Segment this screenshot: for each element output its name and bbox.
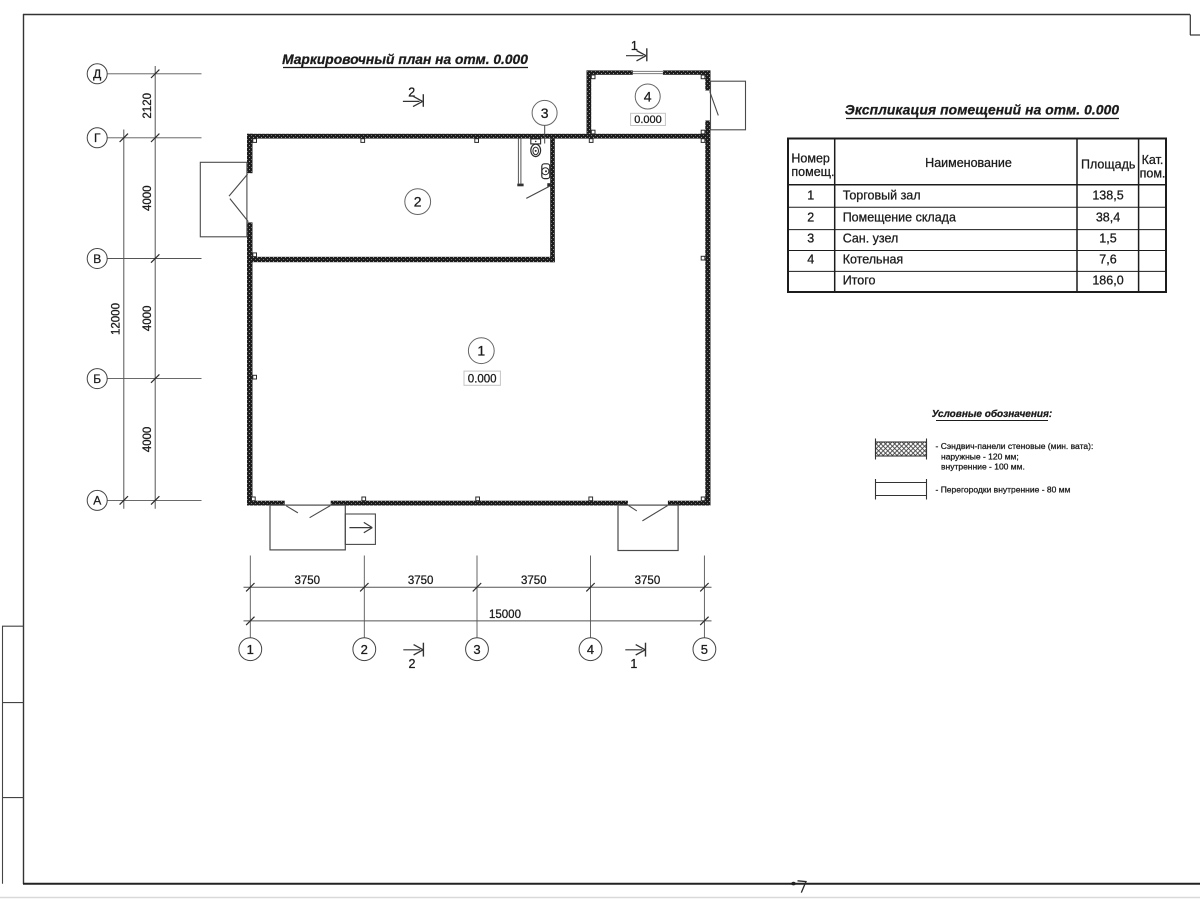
- svg-text:4: 4: [644, 88, 652, 104]
- svg-text:3: 3: [807, 232, 814, 246]
- svg-text:2: 2: [414, 194, 422, 210]
- svg-text:3: 3: [541, 105, 549, 121]
- svg-text:5: 5: [701, 642, 708, 657]
- svg-text:1: 1: [630, 657, 637, 671]
- svg-text:Номер: Номер: [791, 151, 830, 165]
- svg-text:Котельная: Котельная: [843, 252, 904, 266]
- svg-text:1: 1: [247, 642, 254, 657]
- svg-text:4000: 4000: [142, 427, 154, 453]
- svg-text:наружные - 120 мм;: наружные - 120 мм;: [941, 452, 1019, 462]
- svg-text:2: 2: [361, 642, 368, 657]
- svg-text:Маркировочный план на отм. 0.0: Маркировочный план на отм. 0.000: [282, 52, 528, 67]
- svg-text:3750: 3750: [408, 575, 434, 587]
- svg-text:Г: Г: [94, 131, 101, 145]
- svg-text:Наименование: Наименование: [925, 156, 1012, 170]
- svg-text:7,6: 7,6: [1099, 252, 1116, 266]
- svg-text:Итого: Итого: [843, 274, 876, 288]
- svg-text:0.000: 0.000: [634, 114, 662, 126]
- svg-text:3750: 3750: [635, 575, 661, 587]
- svg-text:- Сэндвич-панели стеновые (мин: - Сэндвич-панели стеновые (мин. вата):: [936, 441, 1094, 451]
- svg-text:4000: 4000: [142, 306, 154, 332]
- svg-text:Площадь: Площадь: [1081, 158, 1135, 172]
- svg-text:Условные обозначения:: Условные обозначения:: [932, 408, 1052, 420]
- svg-text:Сан. узел: Сан. узел: [843, 232, 899, 246]
- svg-text:помещ.: помещ.: [791, 165, 834, 179]
- svg-text:0.000: 0.000: [468, 373, 497, 385]
- svg-text:3: 3: [473, 642, 480, 657]
- svg-text:Торговый зал: Торговый зал: [843, 189, 921, 203]
- svg-text:Кат.: Кат.: [1142, 153, 1164, 167]
- svg-text:3750: 3750: [295, 575, 321, 587]
- svg-text:2: 2: [409, 657, 416, 671]
- svg-text:внутренние - 100 мм.: внутренние - 100 мм.: [941, 462, 1025, 472]
- svg-text:12000: 12000: [111, 303, 123, 335]
- svg-text:38,4: 38,4: [1096, 211, 1120, 225]
- svg-text:- Перегородки внутренние - 80: - Перегородки внутренние - 80 мм: [936, 485, 1071, 495]
- svg-text:2120: 2120: [142, 93, 154, 119]
- svg-text:В: В: [93, 252, 101, 266]
- svg-text:186,0: 186,0: [1092, 274, 1123, 288]
- svg-text:1: 1: [477, 343, 485, 359]
- svg-text:3750: 3750: [521, 575, 547, 587]
- svg-text:4: 4: [587, 642, 594, 657]
- svg-text:пом.: пом.: [1140, 167, 1166, 181]
- svg-text:138,5: 138,5: [1092, 189, 1123, 203]
- svg-text:Помещение склада: Помещение склада: [843, 211, 956, 225]
- svg-text:А: А: [93, 494, 101, 508]
- svg-text:Экспликация помещений на отм.: Экспликация помещений на отм. 0.000: [845, 103, 1120, 118]
- svg-text:1: 1: [807, 189, 814, 203]
- svg-text:Д: Д: [93, 67, 101, 81]
- svg-text:Б: Б: [93, 372, 101, 386]
- svg-text:1,5: 1,5: [1099, 232, 1116, 246]
- svg-text:4000: 4000: [142, 185, 154, 211]
- svg-text:4: 4: [807, 252, 814, 266]
- svg-text:2: 2: [807, 211, 814, 225]
- svg-text:15000: 15000: [489, 609, 521, 621]
